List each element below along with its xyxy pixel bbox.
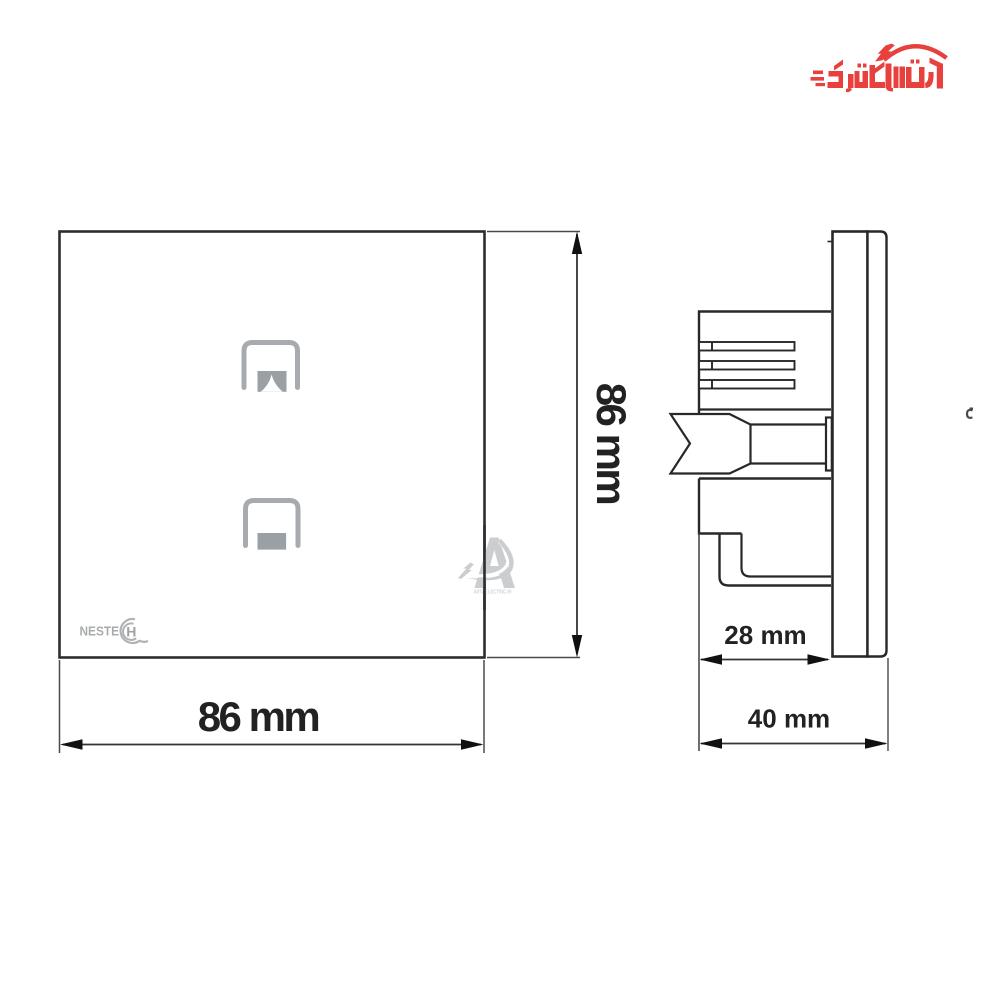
svg-text:86 mm: 86 mm bbox=[588, 383, 635, 504]
svg-text:40 mm: 40 mm bbox=[748, 704, 830, 734]
svg-text:NESTE: NESTE bbox=[80, 624, 120, 639]
svg-text:28 mm: 28 mm bbox=[724, 620, 806, 650]
svg-text:ARTAELECTRIC.IR: ARTAELECTRIC.IR bbox=[474, 590, 512, 596]
svg-text:86 mm: 86 mm bbox=[198, 693, 319, 740]
svg-text:H: H bbox=[126, 623, 136, 639]
